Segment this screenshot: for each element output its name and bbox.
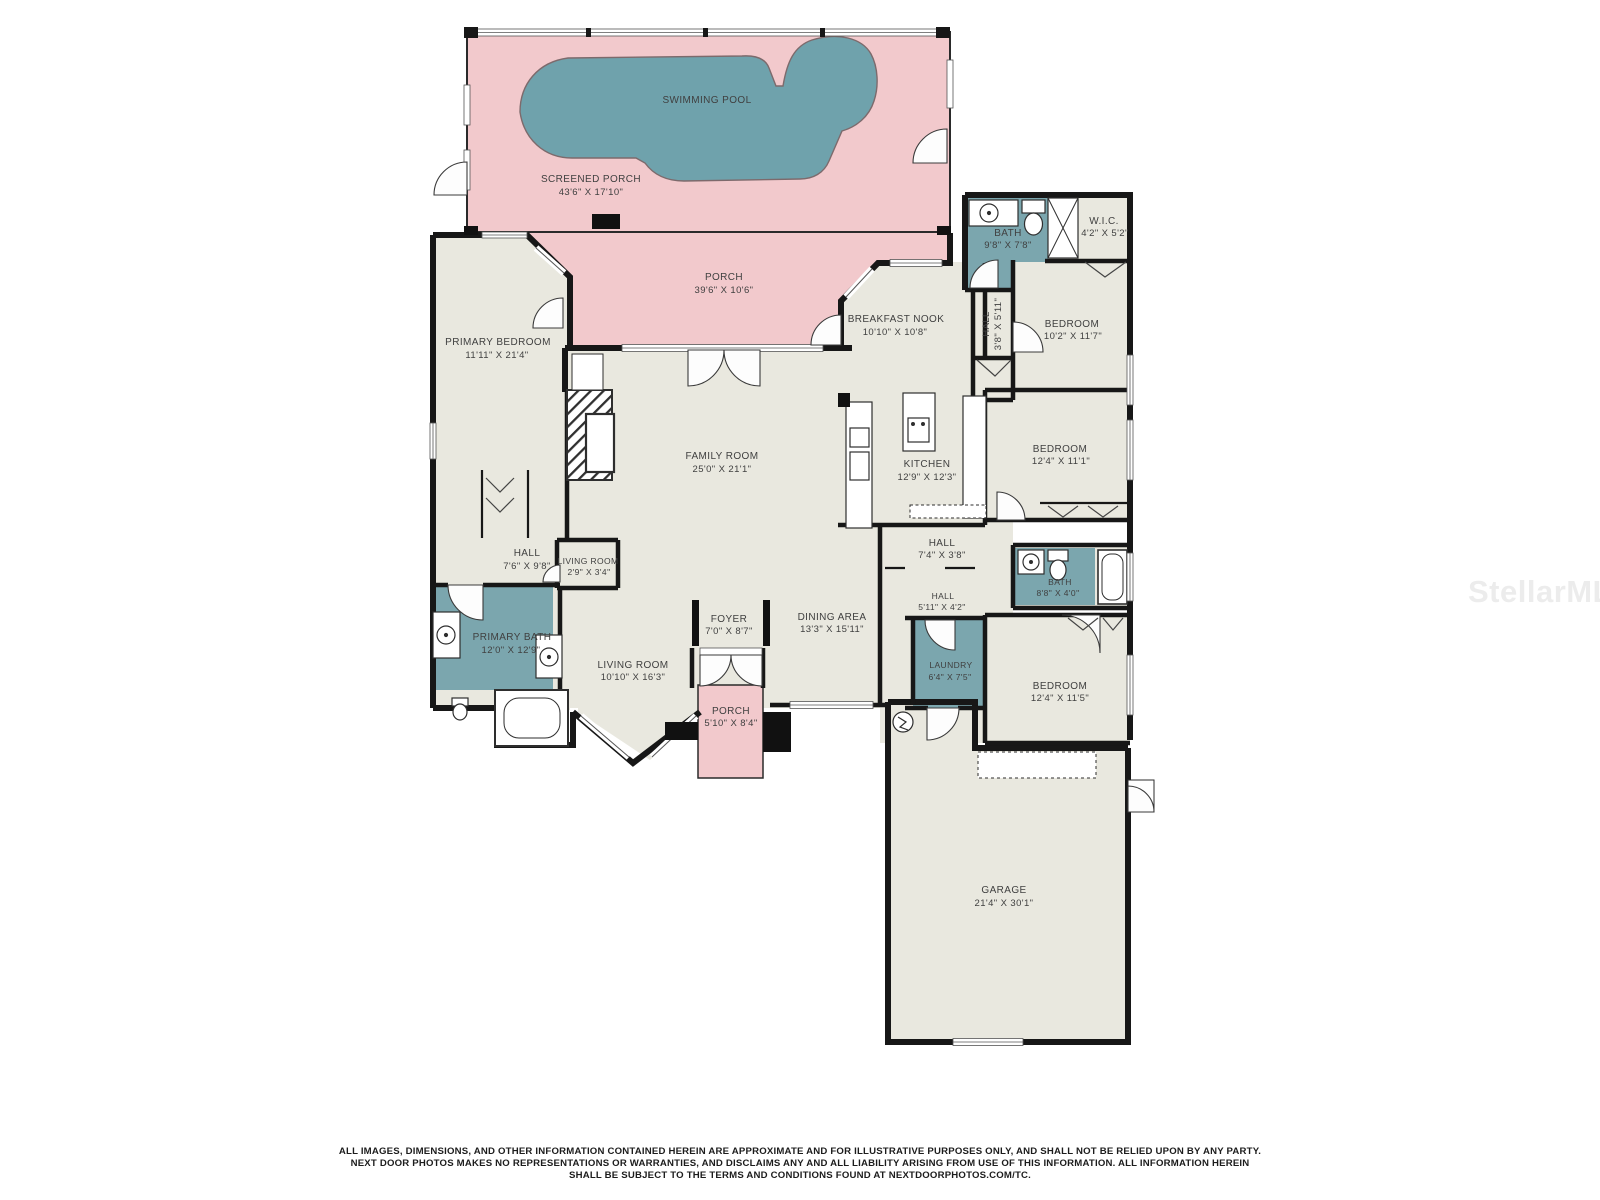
label-living-room: LIVING ROOM [597, 660, 668, 671]
svg-text:5'11" X 4'2": 5'11" X 4'2" [918, 602, 965, 612]
label-family-room: FAMILY ROOM [686, 451, 759, 462]
label-bedroom-top: BEDROOM [1045, 319, 1099, 330]
label-primary-bath: PRIMARY BATH [473, 632, 552, 643]
stove [908, 418, 929, 442]
svg-text:10'10" X 10'8": 10'10" X 10'8" [863, 327, 928, 338]
label-foyer: FOYER [711, 614, 747, 625]
screened-porch-area [464, 27, 953, 232]
floor-plan: SWIMMING POOL SCREENED PORCH 43'6" X 17'… [0, 0, 1600, 1200]
label-living-small: LIVING ROOM [557, 556, 618, 566]
svg-text:7'0" X 8'7": 7'0" X 8'7" [705, 626, 753, 637]
toilet [1025, 213, 1043, 235]
disclaimer-line-3: SHALL BE SUBJECT TO THE TERMS AND CONDIT… [569, 1170, 1031, 1181]
toilet-tank [1022, 200, 1045, 213]
svg-text:10'2" X 11'7": 10'2" X 11'7" [1044, 331, 1102, 342]
label-garage: GARAGE [981, 885, 1026, 896]
label-hall-small: HALL [932, 591, 955, 601]
label-breakfast-nook: BREAKFAST NOOK [848, 314, 945, 325]
svg-text:25'0" X 21'1": 25'0" X 21'1" [693, 464, 752, 475]
svg-text:13'3" X 15'11": 13'3" X 15'11" [800, 624, 864, 635]
label-screened-porch: SCREENED PORCH [541, 174, 641, 185]
svg-text:7'6" X 9'8": 7'6" X 9'8" [503, 561, 551, 572]
svg-text:11'11" X 21'4": 11'11" X 21'4" [465, 350, 528, 361]
label-porch-entry: PORCH [712, 706, 750, 717]
label-wic: W.I.C. [1089, 216, 1119, 227]
svg-text:12'9" X 12'3": 12'9" X 12'3" [898, 472, 957, 483]
floor-plan-page: SWIMMING POOL SCREENED PORCH 43'6" X 17'… [0, 0, 1600, 1200]
svg-text:6'4" X 7'5": 6'4" X 7'5" [929, 672, 972, 682]
label-bedroom-mid: BEDROOM [1033, 444, 1087, 455]
label-hall-mid: HALL [929, 538, 956, 549]
svg-text:39'6" X 10'6": 39'6" X 10'6" [695, 285, 754, 296]
label-bath-top: BATH [994, 228, 1022, 239]
label-dining-area: DINING AREA [798, 612, 867, 623]
label-hall-left: HALL [514, 548, 541, 559]
disclaimer-line-2: NEXT DOOR PHOTOS MAKES NO REPRESENTATION… [351, 1158, 1250, 1169]
disclaimer: ALL IMAGES, DIMENSIONS, AND OTHER INFORM… [339, 1146, 1261, 1181]
watermark: StellarMLS [1468, 574, 1600, 609]
label-primary-bedroom: PRIMARY BEDROOM [445, 337, 551, 348]
porch-entry-area [698, 685, 763, 778]
laundry-fixtures [893, 712, 913, 732]
label-bath-small: BATH [1048, 577, 1072, 587]
svg-text:21'4" X 30'1": 21'4" X 30'1" [975, 898, 1034, 909]
label-bedroom-bottom: BEDROOM [1033, 681, 1087, 692]
label-porch-top: PORCH [705, 272, 743, 283]
svg-text:2'9" X 3'4": 2'9" X 3'4" [568, 567, 611, 577]
garage-storage [978, 752, 1096, 778]
svg-text:5'10" X 8'4": 5'10" X 8'4" [704, 718, 757, 729]
svg-text:7'4" X 3'8": 7'4" X 3'8" [918, 550, 966, 561]
svg-text:HALL: HALL [981, 311, 992, 336]
svg-text:3'8" X 5'11": 3'8" X 5'11" [993, 298, 1004, 351]
svg-text:8'8" X 4'0": 8'8" X 4'0" [1037, 588, 1080, 598]
svg-text:9'8" X 7'8": 9'8" X 7'8" [984, 240, 1032, 251]
label-swimming-pool: SWIMMING POOL [662, 95, 751, 106]
svg-text:12'0" X 12'9": 12'0" X 12'9" [482, 645, 541, 656]
disclaimer-line-1: ALL IMAGES, DIMENSIONS, AND OTHER INFORM… [339, 1146, 1261, 1157]
svg-text:12'4" X 11'1": 12'4" X 11'1" [1032, 456, 1090, 467]
label-laundry: LAUNDRY [929, 660, 972, 670]
svg-text:10'10" X 16'3": 10'10" X 16'3" [601, 672, 666, 683]
label-kitchen: KITCHEN [904, 459, 951, 470]
svg-text:12'4" X 11'5": 12'4" X 11'5" [1031, 693, 1089, 704]
svg-text:43'6" X 17'10": 43'6" X 17'10" [559, 187, 624, 198]
svg-text:4'2" X 5'2": 4'2" X 5'2" [1081, 228, 1129, 239]
